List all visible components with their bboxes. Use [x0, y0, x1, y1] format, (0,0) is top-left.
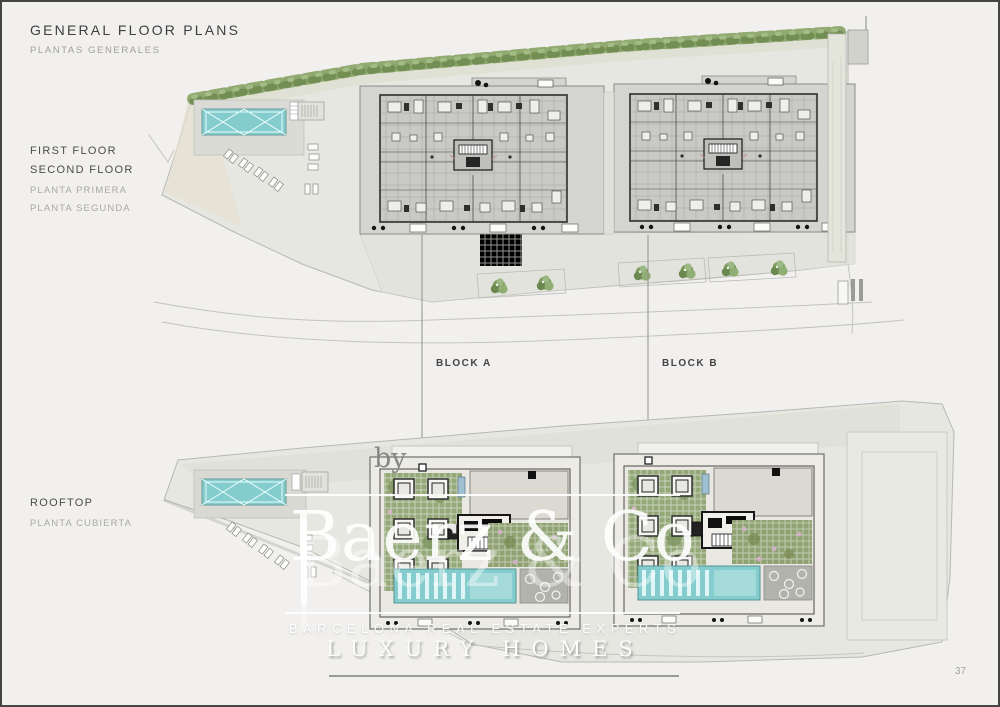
label-rooftop: ROOFTOP [30, 494, 132, 513]
label-second-floor: SECOND FLOOR [30, 161, 134, 180]
watermark-rule-mid [285, 612, 680, 614]
page-title: GENERAL FLOOR PLANS [30, 22, 240, 38]
rooftop-left-pool [202, 479, 286, 505]
brand-logo: Baerz & Co [290, 504, 690, 572]
label-planta-primera: PLANTA PRIMERA [30, 182, 134, 200]
label-first-floor: FIRST FLOOR [30, 142, 134, 161]
watermark-rule-bottom [329, 675, 679, 677]
block-b-label: BLOCK B [662, 358, 718, 369]
upper-block-a [360, 78, 604, 234]
upper-pool [202, 109, 286, 135]
page-number: 37 [955, 666, 966, 677]
brand-tagline: BARCELONA REAL ESTATE EXPERTS [285, 621, 685, 636]
brand-tagline-2: LUXURY HOMES [285, 637, 685, 661]
block-a-label: BLOCK A [436, 358, 492, 369]
label-planta-cubierta: PLANTA CUBIERTA [30, 515, 132, 533]
brochure-page: GENERAL FLOOR PLANS PLANTAS GENERALES FI… [0, 0, 1000, 707]
upper-block-b [614, 76, 855, 232]
label-planta-segunda: PLANTA SEGUNDA [30, 200, 134, 218]
watermark-by: by [374, 443, 407, 474]
lower-plan-label: ROOFTOP PLANTA CUBIERTA [30, 494, 132, 533]
upper-plan-label: FIRST FLOOR SECOND FLOOR PLANTA PRIMERA … [30, 142, 134, 218]
page-subtitle: PLANTAS GENERALES [30, 45, 161, 56]
upper-site-plan [149, 16, 904, 343]
watermark-rule-top [285, 494, 680, 496]
